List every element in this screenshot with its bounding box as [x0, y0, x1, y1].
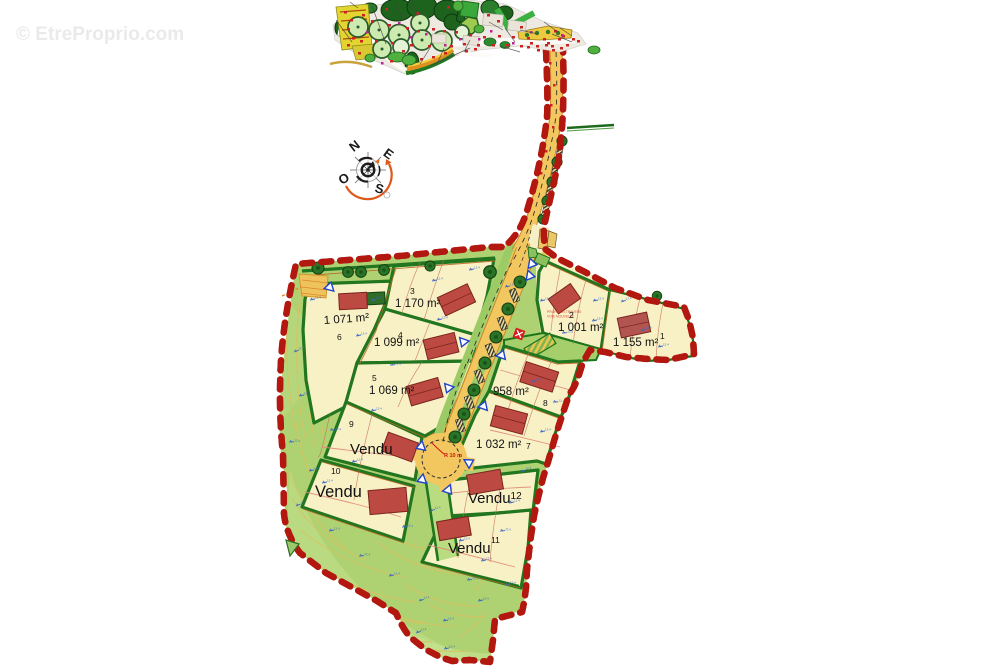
svg-text:11: 11 — [491, 535, 500, 545]
svg-text:© EtreProprio.com: © EtreProprio.com — [16, 24, 184, 45]
svg-text:1: 1 — [660, 331, 665, 341]
svg-text:6: 6 — [337, 332, 342, 342]
svg-text:1 155 m²: 1 155 m² — [613, 337, 659, 349]
svg-text:10: 10 — [331, 466, 341, 476]
svg-text:PROFIL EN TRAVERS: PROFIL EN TRAVERS — [547, 310, 582, 314]
svg-text:Vendu: Vendu — [350, 441, 393, 458]
svg-text:1 069 m²: 1 069 m² — [369, 385, 415, 397]
svg-text:E: E — [381, 145, 397, 162]
svg-text:N: N — [346, 137, 363, 155]
svg-text:1 170 m²: 1 170 m² — [395, 298, 441, 310]
svg-text:Vendu: Vendu — [448, 540, 491, 557]
svg-text:7: 7 — [526, 441, 531, 451]
svg-text:O: O — [336, 170, 352, 188]
svg-text:3: 3 — [410, 286, 415, 296]
svg-text:2: 2 — [569, 310, 574, 320]
svg-text:1 032 m²: 1 032 m² — [476, 439, 522, 451]
svg-text:5: 5 — [372, 373, 377, 383]
svg-text:1 099 m²: 1 099 m² — [374, 337, 420, 349]
svg-text:Vendu: Vendu — [315, 483, 362, 501]
svg-text:8: 8 — [543, 398, 548, 408]
svg-text:958 m²: 958 m² — [493, 386, 529, 398]
svg-text:1 001 m²: 1 001 m² — [558, 322, 604, 334]
svg-text:R 10 m: R 10 m — [444, 453, 462, 459]
svg-text:9: 9 — [349, 419, 354, 429]
